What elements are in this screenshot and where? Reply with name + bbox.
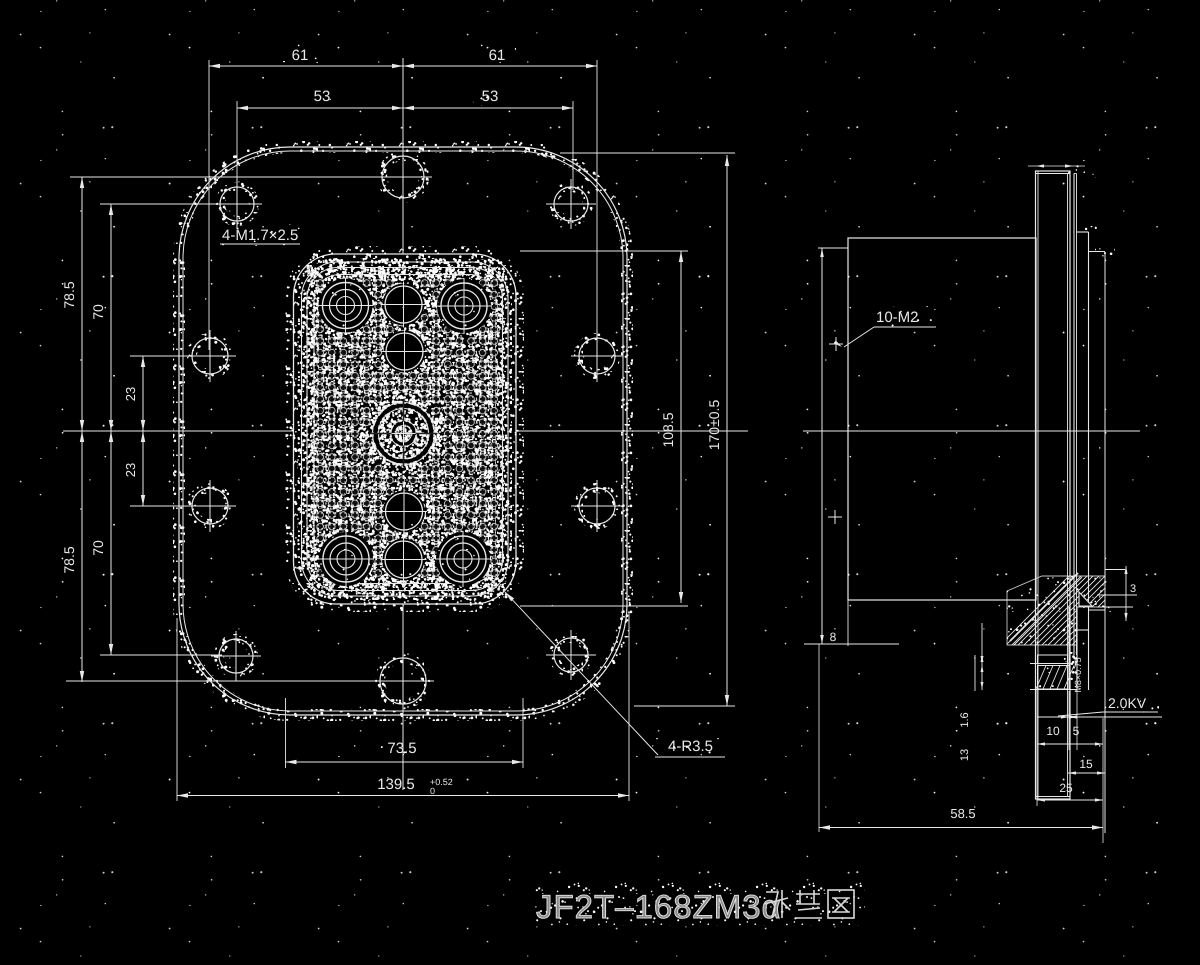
svg-text:JF2T–168ZM3α: JF2T–168ZM3α <box>536 888 782 925</box>
svg-text:3: 3 <box>1130 583 1136 595</box>
